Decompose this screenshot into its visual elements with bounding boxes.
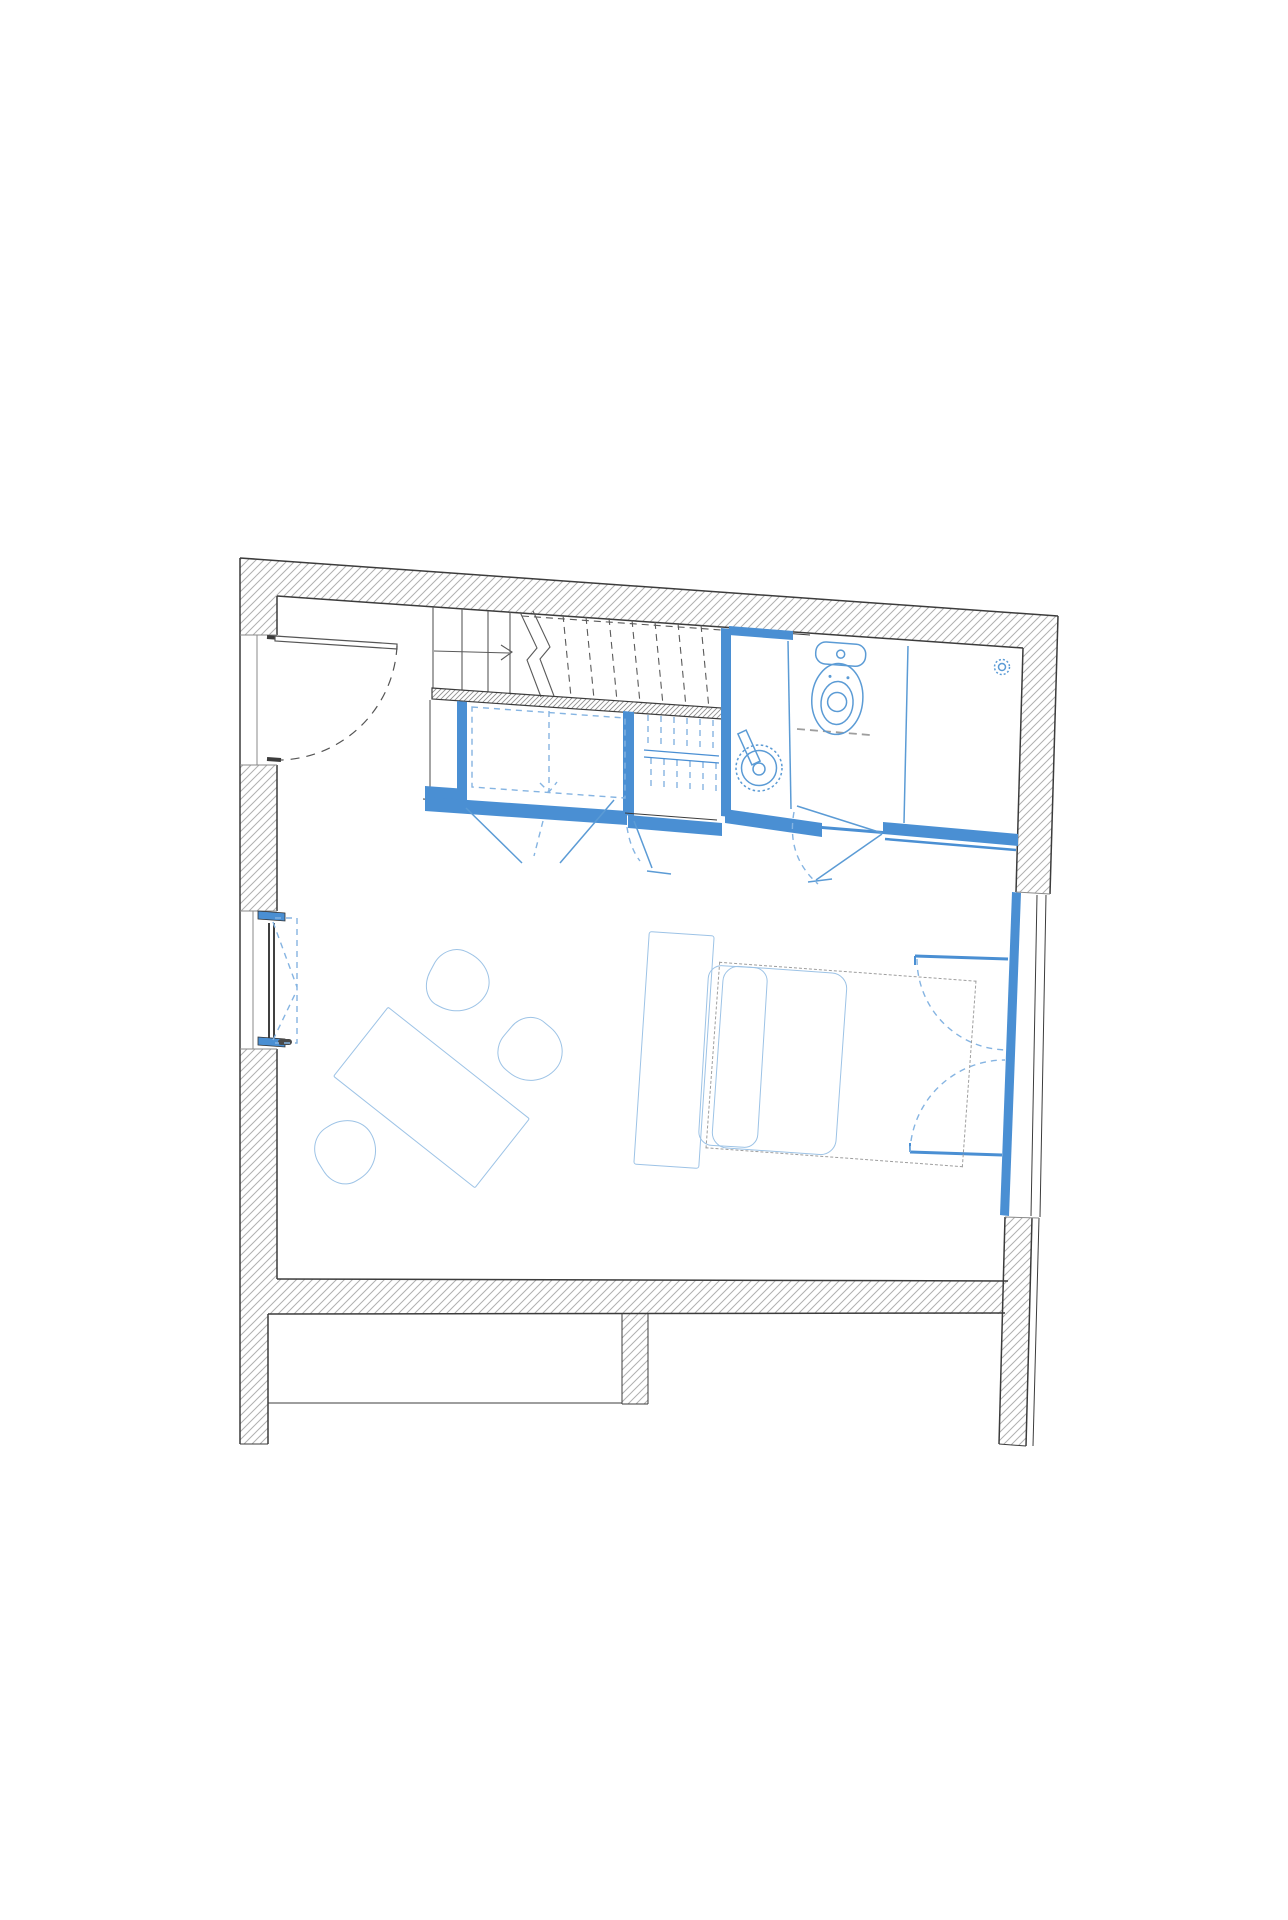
ladder-rungs-upper xyxy=(648,715,713,750)
entry-door-swing-arc xyxy=(281,646,397,760)
shower-drain xyxy=(995,660,1010,675)
bathroom-wall-south-right xyxy=(883,822,1018,846)
stair-treads-solid xyxy=(462,609,510,693)
toilet-bolt-right xyxy=(846,676,849,679)
ladder-rails xyxy=(644,750,719,763)
wc-partition xyxy=(788,641,791,809)
bathroom-door-tick xyxy=(808,879,832,882)
exterior-wall-left-c xyxy=(240,1049,277,1314)
washbasin xyxy=(736,730,782,791)
interior-wall-band xyxy=(277,1279,1008,1314)
window-lining-stripe xyxy=(1000,892,1021,1216)
window-leaf-top xyxy=(915,956,1008,959)
toilet-button xyxy=(836,650,845,659)
bathroom-door xyxy=(792,806,882,884)
stair-landing-edge xyxy=(432,688,722,719)
window-outer-frame xyxy=(1031,895,1046,1217)
window-frame-top xyxy=(258,911,285,921)
door-hinge-blocks xyxy=(267,637,281,760)
band-south-line xyxy=(268,1313,1005,1314)
loft-ladder xyxy=(625,715,722,874)
exterior-wall-left-d xyxy=(240,1314,268,1444)
wall-pier xyxy=(622,1314,648,1404)
window-handle xyxy=(278,1039,292,1045)
casement-swing-dashed xyxy=(273,922,297,1040)
bathroom xyxy=(721,626,1018,884)
wardrobe-swing-dashed xyxy=(534,821,543,856)
tilt-turn-window-left xyxy=(258,911,297,1047)
wardrobe-interior-dashed xyxy=(472,707,625,798)
entry-door xyxy=(267,636,397,760)
stair-arrow-shaft xyxy=(434,651,509,653)
right-wall-outer-lower-2 xyxy=(1033,1218,1039,1446)
drain-outer-icon xyxy=(995,660,1010,675)
stair-treads-dashed xyxy=(563,615,709,709)
ladder-bay-band xyxy=(628,815,722,836)
toilet xyxy=(809,641,867,736)
entry-door-leaf xyxy=(275,636,397,649)
bathroom-wall-west xyxy=(721,628,731,817)
shower-partition xyxy=(904,646,908,823)
ladder-rungs-lower xyxy=(651,758,716,795)
bathroom-wall-south-left xyxy=(725,809,822,837)
wardrobe-wall-left xyxy=(457,701,467,790)
toilet-bolt-left xyxy=(828,675,831,678)
toilet-seat-ring xyxy=(819,680,854,725)
bay-door-tick xyxy=(647,871,671,874)
basin-rim-dotted xyxy=(736,745,782,791)
window-glazing xyxy=(269,923,274,1040)
wardrobe xyxy=(423,700,634,863)
basin-bowl xyxy=(742,751,777,786)
staircase xyxy=(432,607,722,719)
floor-plan-drawing xyxy=(0,0,1288,1920)
basin-drain xyxy=(753,763,765,775)
drain-inner-icon xyxy=(999,664,1006,671)
bathroom-door-leaf-b xyxy=(816,834,882,880)
exterior-wall-top xyxy=(240,558,1058,648)
toilet-drain xyxy=(827,692,847,712)
stair-break-line-1 xyxy=(520,612,541,697)
exterior-wall-left-b xyxy=(240,765,277,911)
floor-plan-page xyxy=(0,0,1288,1920)
wall-cut-ends xyxy=(240,1444,1026,1446)
